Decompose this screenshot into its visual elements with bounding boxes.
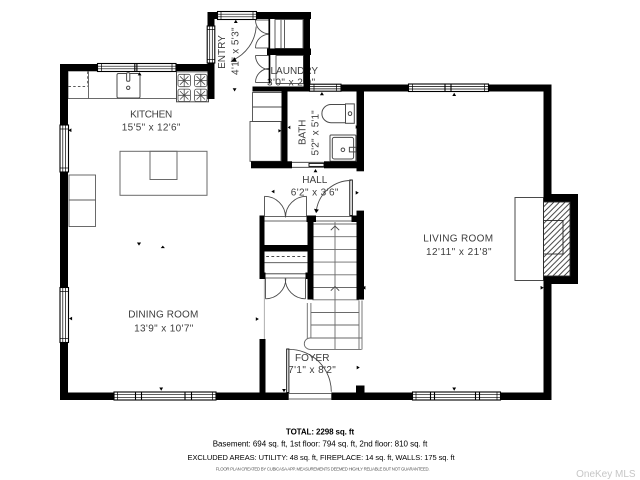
svg-text:6'2" x 3'6": 6'2" x 3'6" xyxy=(291,188,339,199)
svg-text:12'11" x 21'8": 12'11" x 21'8" xyxy=(426,247,492,258)
svg-text:4'1" x 5'3": 4'1" x 5'3" xyxy=(231,27,242,75)
svg-text:TOTAL: 2298 sq. ft: TOTAL: 2298 sq. ft xyxy=(286,428,355,437)
svg-text:Basement: 694 sq. ft, 1st floo: Basement: 694 sq. ft, 1st floor: 794 sq.… xyxy=(213,440,428,449)
svg-text:FLOOR PLAN CREATED BY CUBICASA: FLOOR PLAN CREATED BY CUBICASA APP. MEAS… xyxy=(216,467,430,472)
svg-text:OneKey MLS: OneKey MLS xyxy=(576,469,636,480)
svg-text:EXCLUDED AREAS: UTILITY: 48 sq: EXCLUDED AREAS: UTILITY: 48 sq. ft, FIRE… xyxy=(188,453,456,462)
svg-text:5'2" x 5'1": 5'2" x 5'1" xyxy=(311,110,322,156)
svg-text:7'1" x 8'2": 7'1" x 8'2" xyxy=(288,365,336,376)
svg-text:LAUNDRY: LAUNDRY xyxy=(270,66,318,77)
svg-text:LIVING ROOM: LIVING ROOM xyxy=(423,233,493,244)
svg-text:BATH: BATH xyxy=(298,120,309,145)
svg-text:FOYER: FOYER xyxy=(295,353,329,364)
svg-text:13'9" x 10'7": 13'9" x 10'7" xyxy=(134,323,194,334)
svg-text:HALL: HALL xyxy=(302,175,327,186)
svg-text:KITCHEN: KITCHEN xyxy=(130,110,172,121)
svg-text:ENTRY: ENTRY xyxy=(217,35,228,69)
svg-text:DINING ROOM: DINING ROOM xyxy=(128,310,198,321)
svg-text:15'5" x 12'6": 15'5" x 12'6" xyxy=(122,122,181,133)
